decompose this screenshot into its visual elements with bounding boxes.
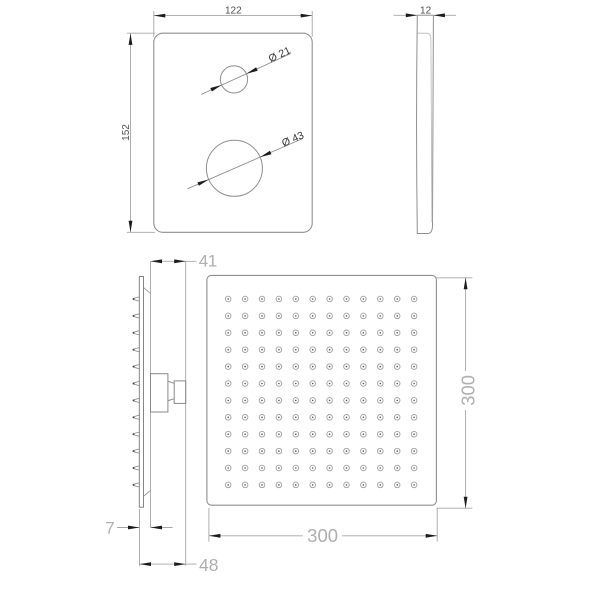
svg-text:12: 12: [420, 5, 432, 16]
svg-text:41: 41: [199, 252, 217, 271]
svg-text:300: 300: [457, 375, 478, 406]
svg-text:152: 152: [121, 124, 132, 141]
svg-text:122: 122: [225, 6, 242, 17]
svg-text:7: 7: [105, 519, 114, 538]
svg-text:48: 48: [199, 555, 218, 575]
svg-text:300: 300: [307, 525, 338, 546]
